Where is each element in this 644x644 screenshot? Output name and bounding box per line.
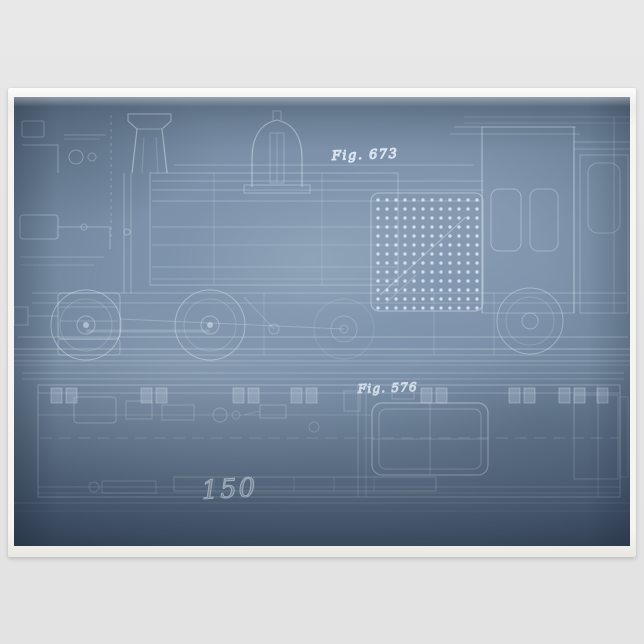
blueprint-print-area: Fig. 673 [14, 97, 630, 546]
bunker-right-end [464, 117, 630, 313]
inset-piping-diagram [20, 115, 111, 265]
firebox-plan [372, 403, 488, 475]
locomotive-plan-view: Fig. 576 150 [14, 361, 630, 511]
fig-673-label: Fig. 673 [331, 147, 399, 164]
chimney-detail [128, 114, 171, 173]
lower-edge-lines [14, 503, 630, 511]
locomotive-side-elevation: Fig. 673 [14, 111, 630, 360]
locomotive-blueprint-drawing: Fig. 673 [14, 97, 630, 546]
blueprint-paper-sheet: Fig. 673 [8, 88, 636, 557]
fig-576-label: Fig. 576 [357, 380, 418, 396]
between-rails [14, 361, 630, 379]
pressure-number-150: 150 [201, 473, 258, 506]
plan-bottom-gear [89, 477, 436, 493]
product-photo-background: Fig. 673 [0, 0, 644, 644]
smokebox-front [124, 173, 131, 293]
cylinder-block [14, 293, 120, 355]
